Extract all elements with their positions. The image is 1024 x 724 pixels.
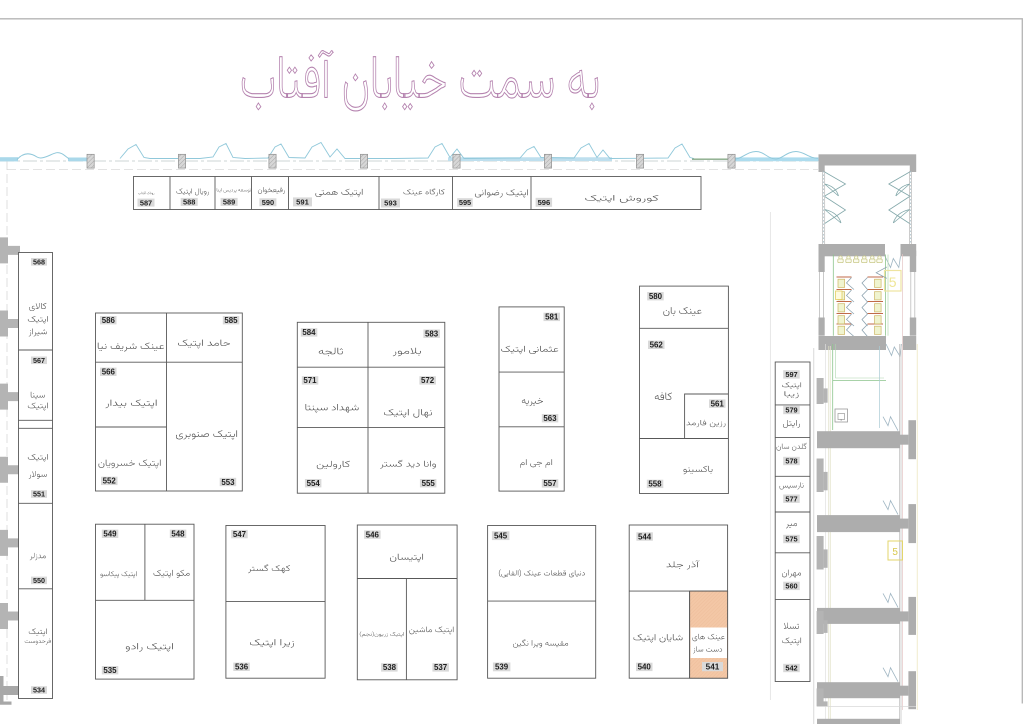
svg-text:580: 580 bbox=[649, 292, 663, 301]
svg-text:540: 540 bbox=[638, 663, 652, 672]
svg-text:587: 587 bbox=[140, 198, 152, 207]
svg-text:567: 567 bbox=[33, 356, 45, 365]
svg-text:537: 537 bbox=[434, 663, 448, 672]
svg-text:552: 552 bbox=[103, 477, 117, 486]
svg-text:575: 575 bbox=[785, 535, 797, 544]
svg-text:562: 562 bbox=[650, 341, 664, 350]
svg-text:554: 554 bbox=[307, 479, 321, 488]
svg-text:557: 557 bbox=[543, 479, 557, 488]
svg-text:534: 534 bbox=[33, 686, 45, 695]
svg-text:585: 585 bbox=[224, 316, 238, 325]
svg-text:547: 547 bbox=[233, 530, 247, 539]
svg-text:577: 577 bbox=[785, 494, 797, 503]
svg-text:535: 535 bbox=[103, 666, 117, 675]
svg-text:584: 584 bbox=[302, 328, 316, 337]
svg-text:581: 581 bbox=[545, 313, 559, 322]
svg-text:597: 597 bbox=[785, 370, 797, 379]
svg-text:591: 591 bbox=[296, 198, 309, 207]
svg-text:553: 553 bbox=[221, 478, 235, 487]
svg-text:595: 595 bbox=[459, 198, 471, 207]
svg-text:558: 558 bbox=[648, 480, 662, 489]
svg-text:551: 551 bbox=[33, 490, 45, 499]
svg-text:548: 548 bbox=[171, 530, 185, 539]
svg-text:539: 539 bbox=[495, 663, 509, 672]
svg-text:568: 568 bbox=[33, 257, 45, 266]
svg-text:545: 545 bbox=[494, 532, 508, 541]
svg-text:571: 571 bbox=[303, 376, 317, 385]
svg-text:555: 555 bbox=[422, 479, 436, 488]
svg-text:583: 583 bbox=[425, 330, 439, 339]
svg-text:546: 546 bbox=[366, 530, 380, 539]
svg-text:549: 549 bbox=[103, 530, 117, 539]
svg-text:563: 563 bbox=[543, 414, 557, 423]
svg-text:579: 579 bbox=[785, 406, 797, 415]
svg-text:538: 538 bbox=[383, 663, 397, 672]
svg-text:5: 5 bbox=[892, 547, 898, 558]
svg-text:586: 586 bbox=[102, 316, 116, 325]
svg-text:541: 541 bbox=[706, 663, 720, 672]
svg-text:5: 5 bbox=[889, 274, 897, 290]
svg-text:561: 561 bbox=[711, 399, 725, 408]
svg-text:593: 593 bbox=[384, 199, 397, 208]
svg-text:589: 589 bbox=[223, 198, 235, 207]
svg-text:590: 590 bbox=[262, 198, 274, 207]
svg-text:572: 572 bbox=[421, 376, 435, 385]
svg-text:596: 596 bbox=[538, 198, 551, 207]
svg-text:536: 536 bbox=[235, 663, 249, 672]
svg-text:542: 542 bbox=[785, 664, 797, 673]
svg-text:588: 588 bbox=[183, 198, 195, 207]
svg-text:544: 544 bbox=[638, 532, 652, 541]
svg-text:560: 560 bbox=[785, 582, 797, 591]
svg-text:566: 566 bbox=[102, 368, 116, 377]
svg-text:578: 578 bbox=[785, 457, 797, 466]
svg-text:550: 550 bbox=[33, 576, 45, 585]
